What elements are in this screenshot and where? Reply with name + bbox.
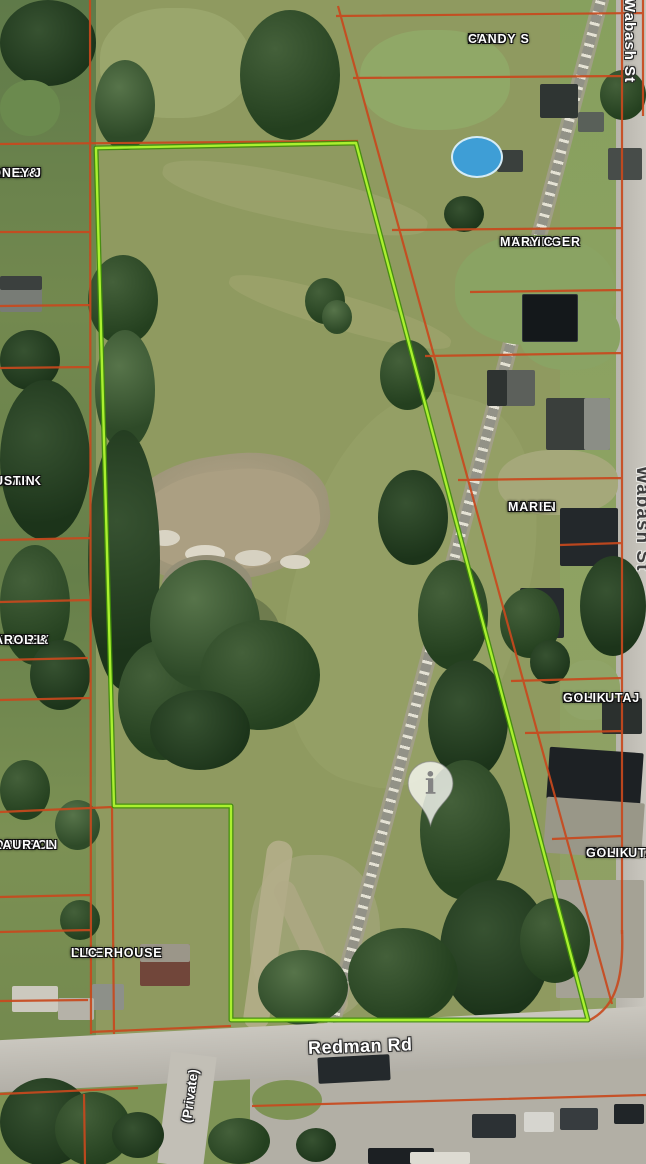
- tree-canopy: [95, 60, 155, 150]
- aerial-imagery: [0, 0, 646, 1164]
- tree-canopy: [0, 380, 90, 540]
- commercial-building-roof: [546, 747, 643, 805]
- tree-canopy: [60, 900, 100, 940]
- vehicle: [524, 1112, 554, 1132]
- tree-canopy: [530, 640, 570, 684]
- vehicle: [317, 1054, 390, 1084]
- shed-roof-dark-side: [487, 370, 507, 406]
- info-marker-glyph: i: [425, 767, 436, 802]
- lawn-patch: [0, 80, 60, 136]
- vehicle: [472, 1114, 516, 1138]
- road-label-redman-rd: Redman Rd: [308, 1034, 413, 1059]
- tree-canopy: [348, 928, 458, 1023]
- tree-canopy: [258, 950, 348, 1025]
- tree-canopy: [240, 10, 340, 140]
- tree-canopy: [208, 1118, 270, 1164]
- tree-canopy: [150, 690, 250, 770]
- lawn-patch: [252, 1080, 322, 1120]
- tree-canopy: [296, 1128, 336, 1162]
- tree-canopy: [380, 340, 435, 410]
- tree-canopy: [55, 800, 100, 850]
- building-roof-light: [584, 398, 610, 450]
- swimming-pool: [451, 136, 503, 178]
- building-roof: [540, 84, 578, 118]
- tree-canopy: [444, 196, 484, 232]
- rock-spot: [235, 550, 271, 566]
- building-roof-light: [58, 998, 94, 1020]
- tree-canopy: [30, 640, 90, 710]
- building-roof: [578, 112, 604, 132]
- road-label-wabash-st-top: Wabash St: [621, 0, 638, 83]
- tree-canopy: [0, 760, 50, 820]
- building-roof-light: [12, 986, 58, 1012]
- tree-canopy: [378, 470, 448, 565]
- field-streak: [158, 147, 432, 248]
- tree-canopy: [520, 898, 590, 983]
- building-roof: [522, 294, 578, 342]
- tree-canopy: [418, 560, 488, 670]
- tree-canopy: [112, 1112, 164, 1158]
- info-marker[interactable]: i: [407, 760, 454, 828]
- tree-canopy: [322, 300, 352, 334]
- building-roof-dark-side: [0, 276, 42, 290]
- vehicle: [560, 1108, 598, 1130]
- vehicle: [614, 1104, 644, 1124]
- aerial-parcel-map[interactable]: FRYE CANDY S ANSON DA E & DNEY J MELLING…: [0, 0, 646, 1164]
- shed-roof: [92, 984, 124, 1010]
- road-label-wabash-st-mid: Wabash St: [631, 466, 646, 571]
- building-roof-light: [410, 1152, 470, 1164]
- tree-canopy: [0, 0, 96, 86]
- building-roof: [608, 148, 642, 180]
- rock-spot: [280, 555, 310, 569]
